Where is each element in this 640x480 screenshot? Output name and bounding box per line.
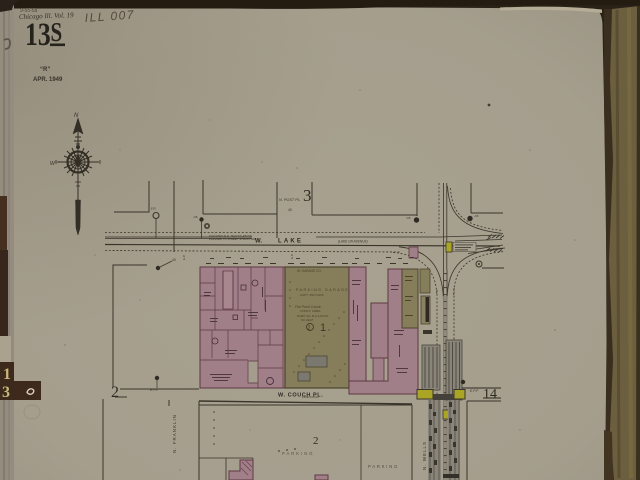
svg-text:W. COUCH PL.: W. COUCH PL. [278,393,323,399]
svg-text:3: 3 [303,186,312,205]
svg-text:F.P.: F.P. [151,207,156,211]
svg-text:N. WELLS: N. WELLS [422,441,427,470]
svg-text:13: 13 [25,17,51,53]
svg-text:PLANKED TO STREET STRUCTURE: PLANKED TO STREET STRUCTURE [209,237,257,241]
svg-text:2: 2 [308,326,311,332]
svg-text:J.B.: J.B. [193,215,198,219]
svg-text:APR. 1949: APR. 1949 [33,77,63,83]
svg-text:E.P.P: E.P.P [470,389,479,393]
svg-text:E.P.: E.P. [290,254,294,259]
svg-text:J.B.: J.B. [474,214,479,218]
svg-text:W. GARAGE CO.: W. GARAGE CO. [297,269,322,273]
svg-text:W.: W. [255,239,262,245]
svg-text:CAPY. 350 CARS: CAPY. 350 CARS [300,293,324,297]
svg-text:CONCT. FRBG.: CONCT. FRBG. [300,309,321,313]
svg-text:PARKING GARAGE: PARKING GARAGE [296,288,349,292]
svg-text:NO HEAT: NO HEAT [301,318,314,322]
svg-text:(LAKE OR AVENUE): (LAKE OR AVENUE) [338,240,368,244]
svg-text:E.P.: E.P. [182,255,186,260]
svg-text:N. FRANKLIN: N. FRANKLIN [172,414,177,453]
svg-text:1: 1 [320,322,326,334]
svg-text:PARKING: PARKING [282,451,315,456]
svg-text:40: 40 [288,208,292,212]
svg-text:S: S [51,18,63,48]
svg-text:3: 3 [2,384,10,401]
svg-text:“R”: “R” [40,67,50,73]
svg-text:1: 1 [3,366,11,383]
svg-text:40: 40 [172,258,176,262]
svg-text:N. POST PL.: N. POST PL. [279,198,301,202]
svg-text:E.P.P: E.P.P [150,388,159,392]
svg-text:2: 2 [111,384,119,401]
svg-text:14: 14 [483,387,497,402]
svg-text:LAKE: LAKE [278,239,303,245]
svg-text:2: 2 [313,435,319,447]
svg-text:PARKING: PARKING [368,464,399,469]
svg-text:J.B.: J.B. [406,216,411,220]
svg-text:N: N [74,113,79,119]
